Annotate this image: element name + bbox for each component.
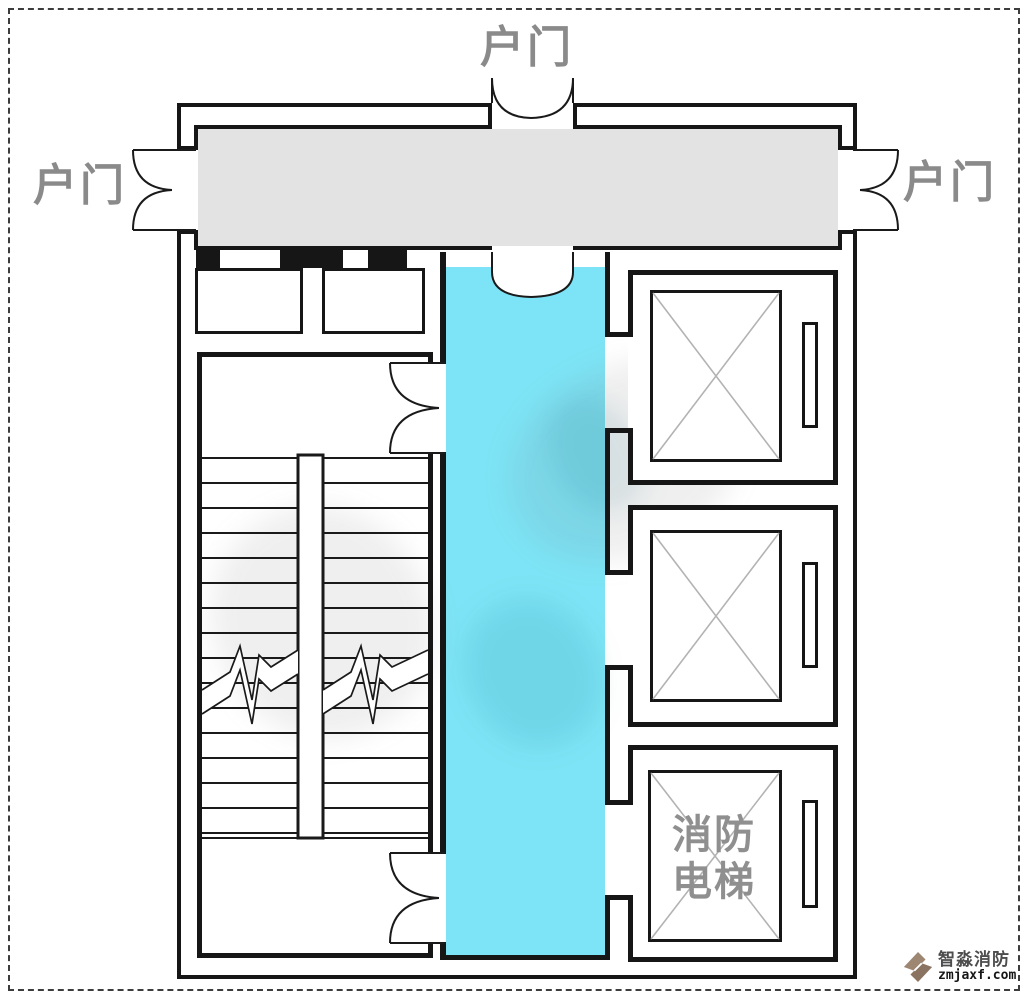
wall-segment (573, 246, 842, 250)
double-door-icon-right (853, 150, 898, 230)
wall-segment (440, 453, 446, 853)
duct-shaft-box (322, 268, 425, 334)
wall-segment (853, 230, 857, 979)
elevator-car (650, 290, 782, 462)
elevator-door-opening (628, 337, 633, 428)
wall-segment (605, 428, 610, 575)
wall-segment (194, 230, 198, 250)
wall-segment (605, 895, 610, 960)
door-label-right: 户门 (903, 161, 997, 205)
wall-segment (194, 125, 198, 150)
wall-segment (196, 250, 220, 268)
wall-segment (838, 125, 842, 150)
wall-segment (573, 103, 857, 107)
wall-segment (368, 250, 407, 268)
elevator-counterweight (802, 562, 818, 668)
wall-segment (177, 230, 181, 979)
elevator-car (650, 530, 782, 702)
wall-segment (440, 955, 610, 960)
wall-segment (440, 252, 446, 363)
wall-segment (605, 252, 610, 337)
wall-segment (838, 230, 842, 250)
elevator-counterweight (802, 800, 818, 908)
double-door-icon-stair-lower (390, 853, 446, 943)
wall-segment (428, 352, 433, 363)
logo-name: 智淼消防 (938, 951, 1016, 969)
wall-segment (194, 125, 492, 129)
elevator-counterweight (802, 322, 818, 428)
double-door-icon-top (492, 78, 573, 118)
wall-segment (177, 975, 857, 979)
door-label-left: 户门 (33, 164, 127, 208)
double-door-icon-stair-upper (390, 363, 446, 453)
elevator-door-opening (628, 805, 633, 895)
duct-shaft-box (195, 268, 303, 334)
double-door-icon-left (133, 150, 196, 230)
wall-segment (605, 665, 610, 805)
door-label-top: 户门 (480, 26, 574, 70)
wall-segment (853, 103, 857, 150)
wall-segment (197, 953, 433, 958)
wall-segment (573, 125, 842, 129)
wall-segment (197, 352, 433, 357)
zm-logo: 智淼消防 zmjaxf.com (902, 949, 1016, 985)
wall-segment (177, 103, 492, 107)
wall-segment (280, 250, 343, 268)
wall-segment (428, 453, 433, 853)
logo-domain: zmjaxf.com (938, 969, 1016, 983)
wall-segment (194, 246, 492, 250)
zm-diamond-logo-icon (902, 949, 934, 985)
wall-segment (428, 943, 433, 958)
elevator-door-opening (628, 575, 633, 665)
fire-elevator-label: 消防电梯 (672, 812, 762, 906)
corridor-area (198, 129, 838, 246)
wall-segment (197, 352, 202, 958)
wall-segment (177, 103, 181, 150)
